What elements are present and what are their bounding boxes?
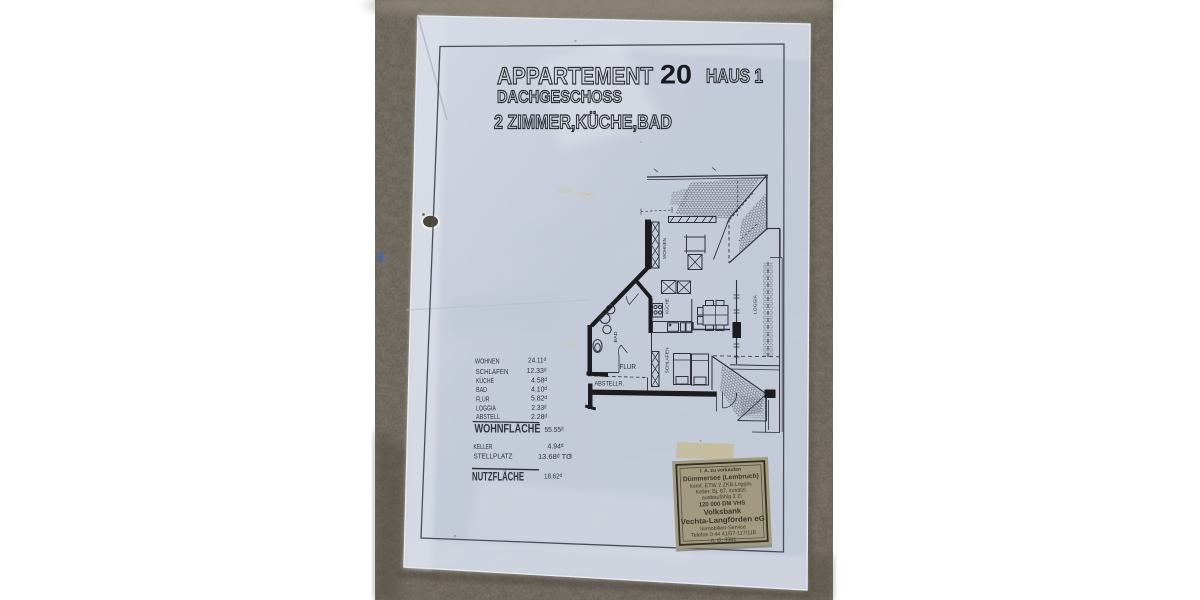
svg-text:ABSTELL: ABSTELL bbox=[476, 412, 500, 421]
svg-text:KELLER: KELLER bbox=[474, 442, 493, 451]
svg-text:24.11ᵈ: 24.11ᵈ bbox=[528, 356, 546, 365]
svg-text:2.33ᵈ: 2.33ᵈ bbox=[532, 403, 547, 412]
svg-text:13.68ᵈ TG: 13.68ᵈ TG bbox=[538, 452, 572, 461]
svg-text:20: 20 bbox=[660, 60, 692, 90]
svg-text:KÜCHE: KÜCHE bbox=[664, 298, 671, 314]
svg-text:2.28ᵈ: 2.28ᵈ bbox=[531, 412, 547, 421]
svg-text:NUTZFLÄCHE: NUTZFLÄCHE bbox=[472, 470, 524, 483]
svg-text:HAUS 1: HAUS 1 bbox=[706, 67, 763, 88]
svg-text:4.58ᵈ: 4.58ᵈ bbox=[531, 375, 547, 384]
svg-text:4.94ᵈ: 4.94ᵈ bbox=[548, 441, 564, 450]
svg-text:ABSTELLR.: ABSTELLR. bbox=[595, 381, 625, 388]
svg-text:BAD: BAD bbox=[476, 385, 487, 394]
svg-text:WOHNEN: WOHNEN bbox=[662, 237, 668, 259]
svg-text:n. G. 3381: n. G. 3381 bbox=[711, 537, 736, 544]
svg-text:12.33ᵈ: 12.33ᵈ bbox=[527, 366, 547, 375]
svg-text:55.55ᵈ: 55.55ᵈ bbox=[545, 425, 564, 434]
svg-text:FLUR: FLUR bbox=[620, 364, 637, 371]
svg-text:FLUR: FLUR bbox=[476, 395, 490, 404]
svg-text:DACHGESCHOSS: DACHGESCHOSS bbox=[497, 87, 622, 107]
svg-text:5.82ᵈ: 5.82ᵈ bbox=[531, 394, 547, 403]
svg-text:4.10ᵈ: 4.10ᵈ bbox=[531, 384, 547, 393]
svg-text:2 ZIMMER,KÜCHE,BAD: 2 ZIMMER,KÜCHE,BAD bbox=[494, 113, 672, 134]
svg-text:BAD: BAD bbox=[613, 331, 619, 343]
svg-text:WOHNFLÄCHE: WOHNFLÄCHE bbox=[475, 423, 541, 436]
svg-text:WOHNEN: WOHNEN bbox=[475, 356, 500, 365]
svg-text:SCHLAFEN: SCHLAFEN bbox=[665, 348, 670, 374]
svg-text:LOGGIA: LOGGIA bbox=[753, 294, 759, 314]
svg-text:KÜCHE: KÜCHE bbox=[476, 376, 494, 385]
svg-text:18.62ᵈ: 18.62ᵈ bbox=[544, 472, 562, 481]
svg-text:SCHLAFEN: SCHLAFEN bbox=[476, 367, 509, 376]
svg-text:STELLPLATZ: STELLPLATZ bbox=[474, 451, 513, 460]
